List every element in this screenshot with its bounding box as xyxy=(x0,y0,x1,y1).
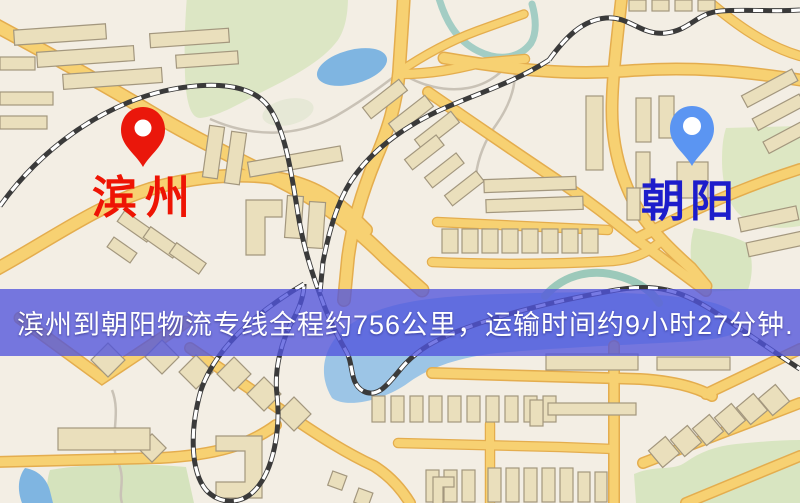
route-info-banner: 滨州到朝阳物流专线全程约756公里，运输时间约9小时27分钟. xyxy=(0,289,800,356)
building xyxy=(372,396,385,422)
map-canvas[interactable]: 滨州 朝阳 xyxy=(0,0,800,503)
building xyxy=(548,403,636,415)
building xyxy=(505,396,518,422)
building xyxy=(542,468,555,502)
building xyxy=(410,396,423,422)
building xyxy=(486,396,499,422)
building xyxy=(675,0,692,11)
origin-pin-hole xyxy=(135,120,152,137)
building xyxy=(484,176,576,192)
route-info-text: 滨州到朝阳物流专线全程约756公里，运输时间约9小时27分钟. xyxy=(17,303,794,342)
building xyxy=(486,196,583,212)
destination-pin-hole xyxy=(683,117,701,135)
building xyxy=(562,229,578,253)
building xyxy=(442,229,458,253)
building xyxy=(448,396,461,422)
building xyxy=(58,428,150,450)
building xyxy=(524,468,537,502)
building xyxy=(542,229,558,253)
building xyxy=(546,354,638,370)
map-screenshot: 滨州 朝阳 滨州到朝阳物流专线全程约756公里，运输时间约9小时27分钟. xyxy=(0,0,800,503)
building xyxy=(462,470,475,502)
building xyxy=(629,0,646,11)
building xyxy=(429,396,442,422)
building xyxy=(0,57,35,70)
building xyxy=(467,396,480,422)
building xyxy=(636,98,651,142)
building xyxy=(530,400,543,426)
building xyxy=(462,229,478,253)
building xyxy=(582,229,598,253)
building xyxy=(488,468,501,502)
building xyxy=(578,472,590,502)
building xyxy=(627,188,640,220)
origin-label: 滨州 xyxy=(92,172,198,223)
destination-label: 朝阳 xyxy=(641,177,739,226)
building xyxy=(506,468,519,502)
building xyxy=(698,0,715,11)
building xyxy=(0,92,53,105)
building xyxy=(0,116,47,129)
building xyxy=(391,396,404,422)
building xyxy=(560,468,573,502)
building xyxy=(595,472,607,502)
building xyxy=(482,229,498,253)
building xyxy=(306,201,325,248)
building xyxy=(502,229,518,253)
building xyxy=(652,0,669,11)
building xyxy=(586,96,603,170)
building xyxy=(522,229,538,253)
building xyxy=(657,357,730,370)
